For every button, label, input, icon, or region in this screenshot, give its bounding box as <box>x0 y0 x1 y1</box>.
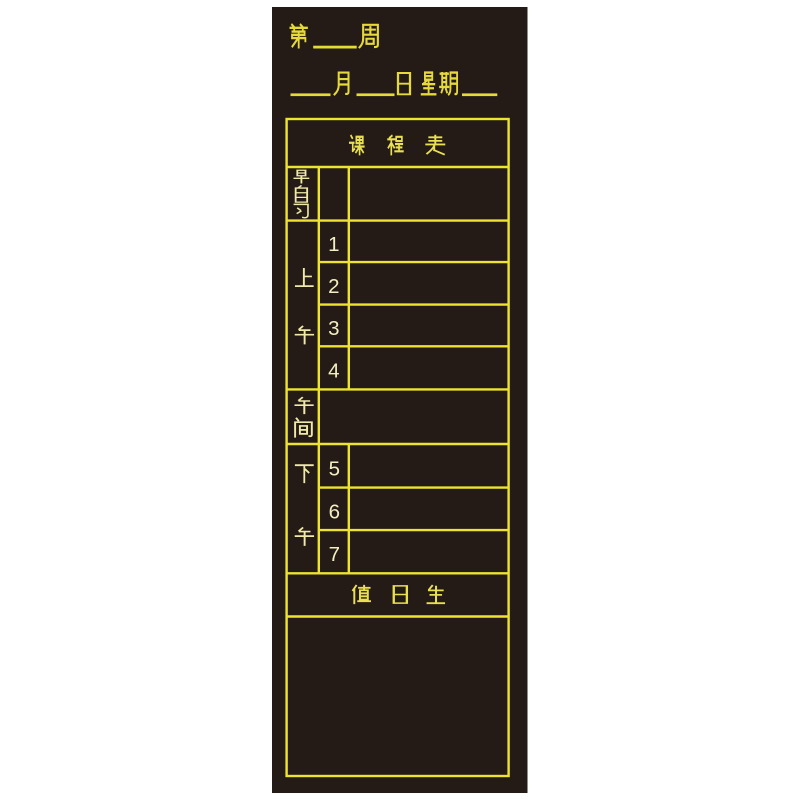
svg-text:3: 3 <box>328 317 339 340</box>
svg-text:6: 6 <box>329 500 340 523</box>
svg-text:4: 4 <box>328 359 339 382</box>
svg-text:2: 2 <box>328 275 339 298</box>
svg-text:1: 1 <box>328 233 339 256</box>
svg-text:5: 5 <box>329 458 340 481</box>
svg-text:7: 7 <box>329 543 340 566</box>
